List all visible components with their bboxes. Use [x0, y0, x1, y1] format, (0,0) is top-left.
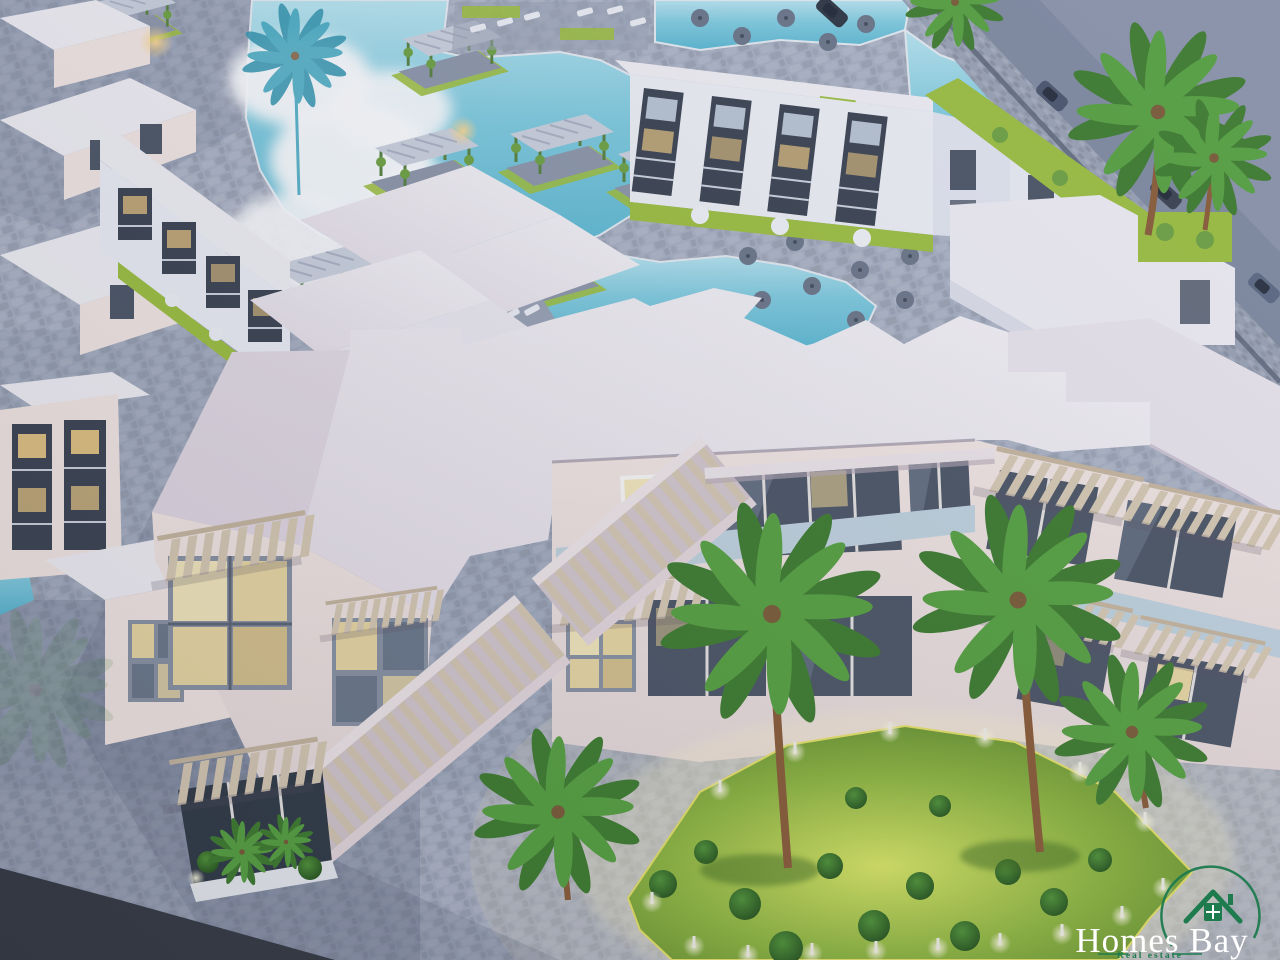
resort-aerial-render: Homes Bay Real estate	[0, 0, 1280, 960]
logo-tagline-text: Real estate	[1117, 951, 1183, 960]
dusk-overlay	[0, 0, 1280, 960]
